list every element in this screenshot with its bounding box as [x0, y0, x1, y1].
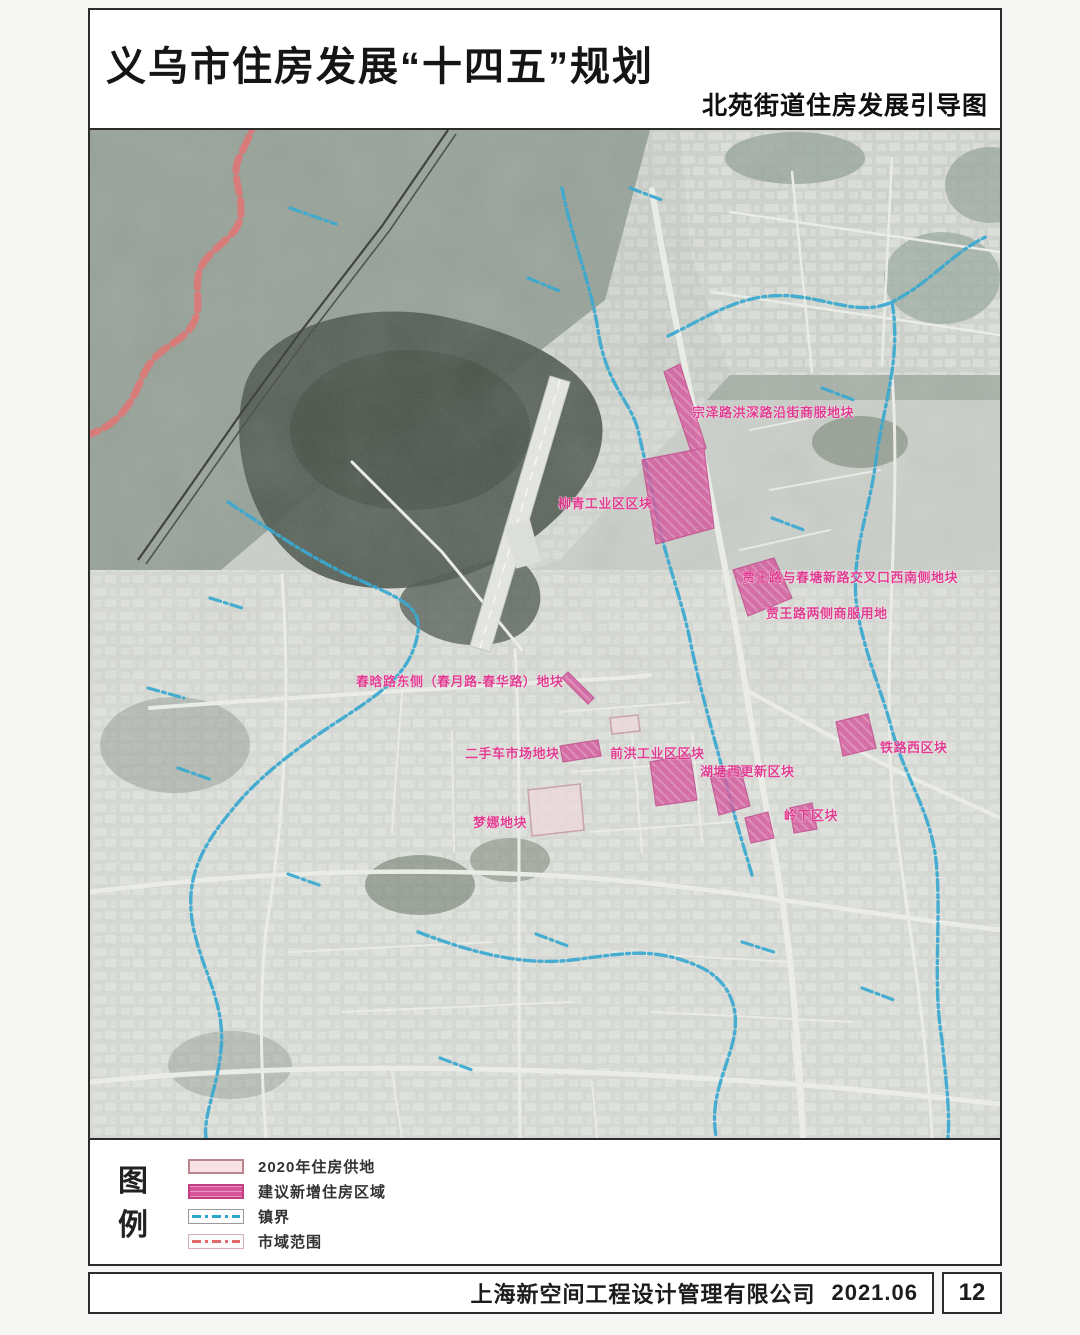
legend-swatch-2020-supply: [188, 1159, 244, 1174]
map-panel: 宗泽路洪深路沿街商服地块 柳青工业区区块 贾王路与春塘新路交叉口西南侧地块 贾王…: [90, 128, 1000, 1140]
legend-swatch-new-housing: [188, 1184, 244, 1199]
map-label-hutang-west: 湖塘西更新区块: [700, 764, 795, 779]
legend-swatch-city-boundary: [188, 1234, 244, 1249]
legend-swatch-town-boundary: [188, 1209, 244, 1224]
footer: 上海新空间工程设计管理有限公司 2021.06 12: [88, 1272, 1002, 1314]
legend-item-2020-supply: 2020年住房供地: [188, 1154, 386, 1179]
page-subtitle: 北苑街道住房发展引导图: [702, 86, 988, 122]
legend-item-city-boundary: 市域范围: [188, 1229, 386, 1254]
map-label-mengna: 梦娜地块: [473, 815, 528, 830]
legend-heading: 图例: [118, 1160, 158, 1264]
legend-item-town-boundary: 镇界: [188, 1204, 386, 1229]
page-number-box: 12: [942, 1272, 1002, 1314]
map-label-used-car-market: 二手车市场地块: [465, 746, 560, 761]
plan-sheet: 义乌市住房发展“十四五”规划 北苑街道住房发展引导图: [88, 8, 1002, 1266]
satellite-map-image: 宗泽路洪深路沿街商服地块 柳青工业区区块 贾王路与春塘新路交叉口西南侧地块 贾王…: [90, 130, 1000, 1138]
map-label-liuqing-industrial: 柳青工业区区块: [558, 496, 653, 511]
scan-grain-texture: [90, 130, 1000, 1138]
map-label-lingxia: 岭下区块: [784, 808, 839, 823]
legend: 图例 2020年住房供地 建议新增住房区域 镇界 市域范围: [90, 1140, 1000, 1264]
map-label-zongze-road: 宗泽路洪深路沿街商服地块: [692, 405, 855, 420]
page-title: 义乌市住房发展“十四五”规划: [106, 34, 654, 92]
publish-date: 2021.06: [831, 1280, 918, 1306]
map-label-chunhan-road: 春晗路东侧（春月路-春华路）地块: [355, 674, 564, 689]
legend-items: 2020年住房供地 建议新增住房区域 镇界 市域范围: [188, 1140, 386, 1264]
company-name: 上海新空间工程设计管理有限公司: [470, 1277, 815, 1309]
map-label-qianhong-industrial: 前洪工业区区块: [610, 746, 705, 761]
header: 义乌市住房发展“十四五”规划 北苑街道住房发展引导图: [90, 10, 1000, 128]
map-label-railway-west: 铁路西区块: [879, 740, 948, 755]
map-label-jiawang-both-sides: 贾王路两侧商服用地: [766, 606, 888, 621]
legend-item-new-housing: 建议新增住房区域: [188, 1179, 386, 1204]
map-label-jiawang-intersection: 贾王路与春塘新路交叉口西南侧地块: [742, 570, 959, 585]
footer-company-bar: 上海新空间工程设计管理有限公司 2021.06: [88, 1272, 934, 1314]
